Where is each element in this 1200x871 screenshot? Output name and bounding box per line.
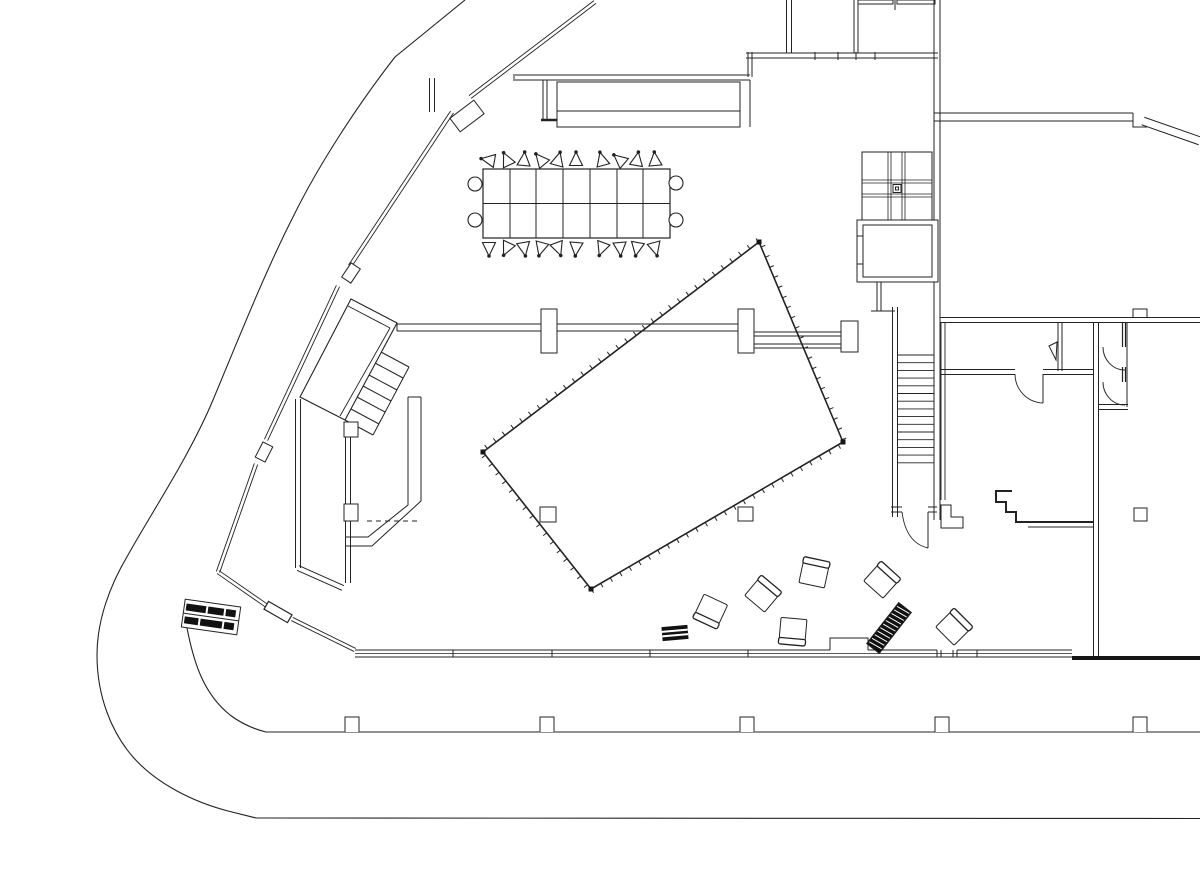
column xyxy=(344,422,358,437)
edge-tick xyxy=(639,561,641,565)
stool xyxy=(669,213,683,227)
edge-tick xyxy=(537,405,540,409)
edge-tick xyxy=(523,507,527,510)
wall-diagonal xyxy=(299,566,344,586)
edge-tick xyxy=(721,265,724,269)
tub-chair xyxy=(863,561,901,599)
edge-tick xyxy=(528,412,531,416)
wall-notch xyxy=(1133,113,1147,127)
edge-tick xyxy=(601,583,603,587)
edge-tick xyxy=(482,455,486,458)
edge-tick xyxy=(765,255,769,257)
edge-tick xyxy=(787,306,791,308)
chair-outline xyxy=(593,241,610,258)
edge-tick xyxy=(625,339,628,343)
east-wing-diagonal-wall xyxy=(1142,125,1199,145)
chair-outline xyxy=(570,152,583,166)
column xyxy=(1134,508,1147,521)
tub-chair xyxy=(744,575,782,613)
curtain-wall-glazing xyxy=(216,463,254,571)
chair-triangle xyxy=(648,150,662,166)
stage-stair-tread xyxy=(375,363,403,378)
edge-tick xyxy=(791,316,795,318)
edge-tick xyxy=(516,498,520,501)
edge-tick xyxy=(493,438,496,442)
edge-tick xyxy=(502,432,505,436)
edge-tick xyxy=(761,245,765,247)
edge-tick xyxy=(825,397,829,399)
edge-tick xyxy=(753,495,755,499)
edge-tick xyxy=(677,539,679,543)
terrace-column xyxy=(345,717,359,732)
curtain-wall-glazing xyxy=(351,113,453,267)
chair-triangle xyxy=(608,149,628,169)
edge-tick xyxy=(795,326,799,328)
curtain-wall-glazing xyxy=(220,465,258,573)
chair-triangle xyxy=(550,149,567,167)
edge-tick xyxy=(543,533,547,536)
door-swing-arc xyxy=(1103,347,1125,370)
chair-triangle xyxy=(613,242,627,258)
edge-tick xyxy=(520,418,523,422)
edge-tick xyxy=(530,516,534,519)
section-cut-wall xyxy=(1072,656,1200,660)
edge-tick xyxy=(819,456,821,460)
floor-plan xyxy=(0,0,1200,871)
exhibit-enclosure-edge xyxy=(483,242,759,452)
curtain-wall-glazing xyxy=(291,621,354,652)
bench-louver xyxy=(225,609,236,617)
wall-diagonal xyxy=(297,570,342,590)
edge-tick xyxy=(572,378,575,382)
edge-tick xyxy=(642,325,645,329)
edge-tick xyxy=(782,296,786,298)
exhibit-enclosure-edge xyxy=(759,242,843,442)
edge-tick xyxy=(812,367,816,369)
edge-tick xyxy=(829,408,833,410)
edge-tick xyxy=(834,418,838,420)
chair-triangle xyxy=(497,148,515,167)
chair-triangle xyxy=(517,150,531,166)
edge-tick xyxy=(651,319,654,323)
tub-chair xyxy=(778,617,807,646)
curtain-wall-glazing xyxy=(219,571,268,605)
edge-tick xyxy=(511,425,514,429)
edge-tick xyxy=(563,385,566,389)
wall-tab xyxy=(1133,309,1147,318)
floor-plan-page xyxy=(0,0,1200,871)
chair-triangle xyxy=(532,241,549,259)
entry-door-band xyxy=(264,601,292,622)
stage-stair-tread xyxy=(369,375,397,390)
chair-outline xyxy=(498,240,515,258)
edge-tick xyxy=(791,472,793,476)
chair-outline xyxy=(610,150,629,169)
edge-tick xyxy=(546,398,549,402)
stage-stair-tread xyxy=(363,386,391,401)
edge-tick xyxy=(799,337,803,339)
edge-tick xyxy=(485,445,488,449)
edge-tick xyxy=(705,522,707,526)
enclosure-corner xyxy=(481,450,486,455)
edge-tick xyxy=(747,245,750,249)
edge-tick xyxy=(712,272,715,276)
chair-outline xyxy=(483,243,496,257)
curtain-wall-glazing xyxy=(293,617,356,648)
edge-tick xyxy=(778,286,782,288)
stool xyxy=(468,177,482,191)
edge-tick xyxy=(629,567,631,571)
chair-outline xyxy=(533,241,549,257)
edge-tick xyxy=(743,500,745,504)
edge-tick xyxy=(838,428,842,430)
edge-tick xyxy=(686,533,688,537)
wall-pier xyxy=(738,309,754,353)
edge-tick xyxy=(724,511,726,515)
edge-tick xyxy=(502,481,506,484)
stool xyxy=(669,176,683,190)
stage-edge xyxy=(348,306,390,328)
column xyxy=(540,507,556,522)
chair-outline xyxy=(647,241,663,257)
bench-louver xyxy=(223,622,234,630)
edge-tick xyxy=(734,506,736,510)
chair-triangle xyxy=(629,241,644,258)
edge-tick xyxy=(607,352,610,356)
door-leaf xyxy=(1049,342,1057,360)
chair-outline xyxy=(550,151,566,167)
edge-tick xyxy=(590,365,593,369)
edge-tick xyxy=(658,550,660,554)
elevator-lobby-inner xyxy=(863,225,932,277)
edge-tick xyxy=(704,279,707,283)
edge-tick xyxy=(620,572,622,576)
chair-triangle xyxy=(478,152,495,167)
bench-body xyxy=(661,625,688,641)
edge-tick xyxy=(715,517,717,521)
tub-chair xyxy=(935,608,973,646)
stage-stair-tread xyxy=(357,397,385,412)
chair-triangle xyxy=(530,148,550,168)
chair-dot xyxy=(574,150,578,154)
chair-outline xyxy=(594,151,610,167)
enclosure-corner xyxy=(589,587,594,592)
column xyxy=(738,507,753,521)
edge-tick xyxy=(577,576,581,579)
chair-triangle xyxy=(569,242,583,258)
chair-outline xyxy=(550,241,567,258)
chair-triangle xyxy=(593,241,610,260)
wall-segment xyxy=(858,0,893,4)
chair-triangle xyxy=(550,241,567,260)
tub-chair xyxy=(798,557,830,589)
edge-tick xyxy=(696,528,698,532)
wall-steps xyxy=(941,505,963,528)
curtain-wall-glazing xyxy=(268,287,340,441)
striped-bench xyxy=(661,625,688,641)
edge-tick xyxy=(774,276,778,278)
enclosure-corner xyxy=(757,240,762,245)
edge-tick xyxy=(808,357,812,359)
curtain-wall-glazing xyxy=(469,1,594,96)
glazing-pier xyxy=(450,100,484,132)
edge-tick xyxy=(695,285,698,289)
edge-tick xyxy=(581,372,584,376)
edge-tick xyxy=(817,377,821,379)
chair-triangle xyxy=(647,241,664,259)
exhibit-enclosure-edge xyxy=(483,452,591,589)
edge-tick xyxy=(660,312,663,316)
edge-tick xyxy=(686,292,689,296)
edge-tick xyxy=(536,524,540,527)
chair-triangle xyxy=(517,241,532,258)
stage-edge xyxy=(340,328,390,416)
chair-triangle xyxy=(593,149,610,167)
facade-bump xyxy=(830,638,868,650)
edge-tick xyxy=(770,266,774,268)
wall-segment xyxy=(897,0,935,4)
edge-tick xyxy=(564,559,568,562)
edge-tick xyxy=(668,305,671,309)
edge-tick xyxy=(509,490,513,493)
edge-tick xyxy=(550,541,554,544)
door-swing-arc xyxy=(1015,374,1043,403)
edge-tick xyxy=(762,489,764,493)
wall-pier xyxy=(541,309,557,353)
curved-wall xyxy=(346,397,421,546)
edge-tick xyxy=(610,578,612,582)
wall-pier xyxy=(841,321,858,352)
chair-triangle xyxy=(497,240,515,259)
terrace-column xyxy=(740,717,754,732)
edge-tick xyxy=(781,478,783,482)
louver-bench xyxy=(181,599,240,635)
edge-tick xyxy=(555,392,558,396)
edge-tick xyxy=(598,358,601,362)
stage-stair-tread xyxy=(381,352,409,367)
chair-triangle xyxy=(483,243,496,258)
stepped-wall xyxy=(996,491,1093,522)
enclosure-corner xyxy=(841,440,846,445)
elevator-counterweight xyxy=(896,187,899,190)
column xyxy=(344,504,358,521)
edge-tick xyxy=(616,345,619,349)
edge-tick xyxy=(489,464,493,467)
edge-tick xyxy=(810,461,812,465)
edge-tick xyxy=(772,484,774,488)
edge-tick xyxy=(557,550,561,553)
edge-tick xyxy=(677,299,680,303)
north-wall-band xyxy=(557,82,740,127)
edge-tick xyxy=(739,252,742,256)
edge-tick xyxy=(633,332,636,336)
door-swing-arc xyxy=(1103,382,1125,405)
chair-dot xyxy=(487,254,491,258)
edge-tick xyxy=(496,472,500,475)
tub-chair xyxy=(692,594,728,629)
terrace-column xyxy=(935,717,949,732)
edge-tick xyxy=(584,585,588,588)
east-wing-diagonal-wall xyxy=(1144,117,1200,137)
chair-triangle xyxy=(630,149,645,166)
curtain-wall-glazing xyxy=(349,111,451,265)
edge-tick xyxy=(648,556,650,560)
terrace-column xyxy=(1133,717,1147,732)
chair-outline xyxy=(498,150,515,168)
curtain-wall-glazing xyxy=(217,573,266,607)
hatched-ramp xyxy=(867,603,912,654)
chair-triangle xyxy=(570,150,583,165)
edge-tick xyxy=(570,567,574,570)
glazing-mullion xyxy=(342,263,361,283)
door-swing-arc xyxy=(902,512,928,548)
edge-tick xyxy=(821,387,825,389)
chair-outline xyxy=(531,150,550,169)
edge-tick xyxy=(730,259,733,263)
edge-tick xyxy=(838,445,840,449)
glazing-mullion xyxy=(255,442,273,462)
edge-tick xyxy=(667,545,669,549)
stool xyxy=(468,213,482,227)
edge-tick xyxy=(800,467,802,471)
terrace-column xyxy=(540,717,554,732)
edge-tick xyxy=(829,450,831,454)
